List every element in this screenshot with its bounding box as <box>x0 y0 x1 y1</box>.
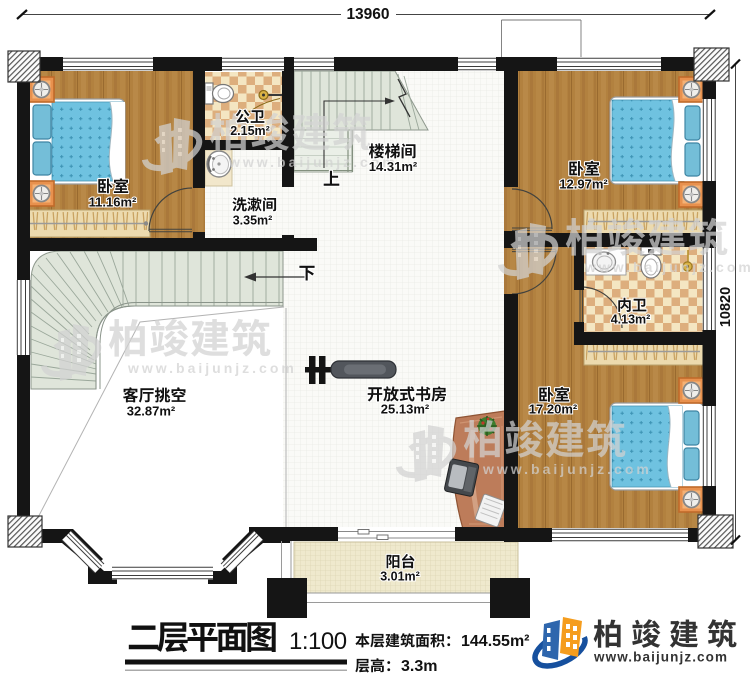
svg-text:3.35m²: 3.35m² <box>233 214 273 228</box>
svg-text:www.baijunjz.com: www.baijunjz.com <box>593 650 728 665</box>
svg-text:14.31m²: 14.31m² <box>369 159 418 174</box>
svg-text:4.13m²: 4.13m² <box>611 313 651 327</box>
svg-text:3.01m²: 3.01m² <box>380 570 420 584</box>
svg-text:11.16m²: 11.16m² <box>89 195 137 210</box>
svg-text:13960: 13960 <box>346 6 389 23</box>
svg-text:10820: 10820 <box>718 287 734 327</box>
svg-text:144.55m²: 144.55m² <box>461 633 530 650</box>
svg-text:2.15m²: 2.15m² <box>230 124 270 138</box>
svg-text:32.87m²: 32.87m² <box>127 404 176 419</box>
svg-text:1:100: 1:100 <box>289 628 347 655</box>
svg-text:3.3m: 3.3m <box>401 658 437 675</box>
svg-text:25.13m²: 25.13m² <box>381 402 430 417</box>
svg-text:17.20m²: 17.20m² <box>529 402 578 417</box>
svg-text:12.97m²: 12.97m² <box>559 177 608 192</box>
